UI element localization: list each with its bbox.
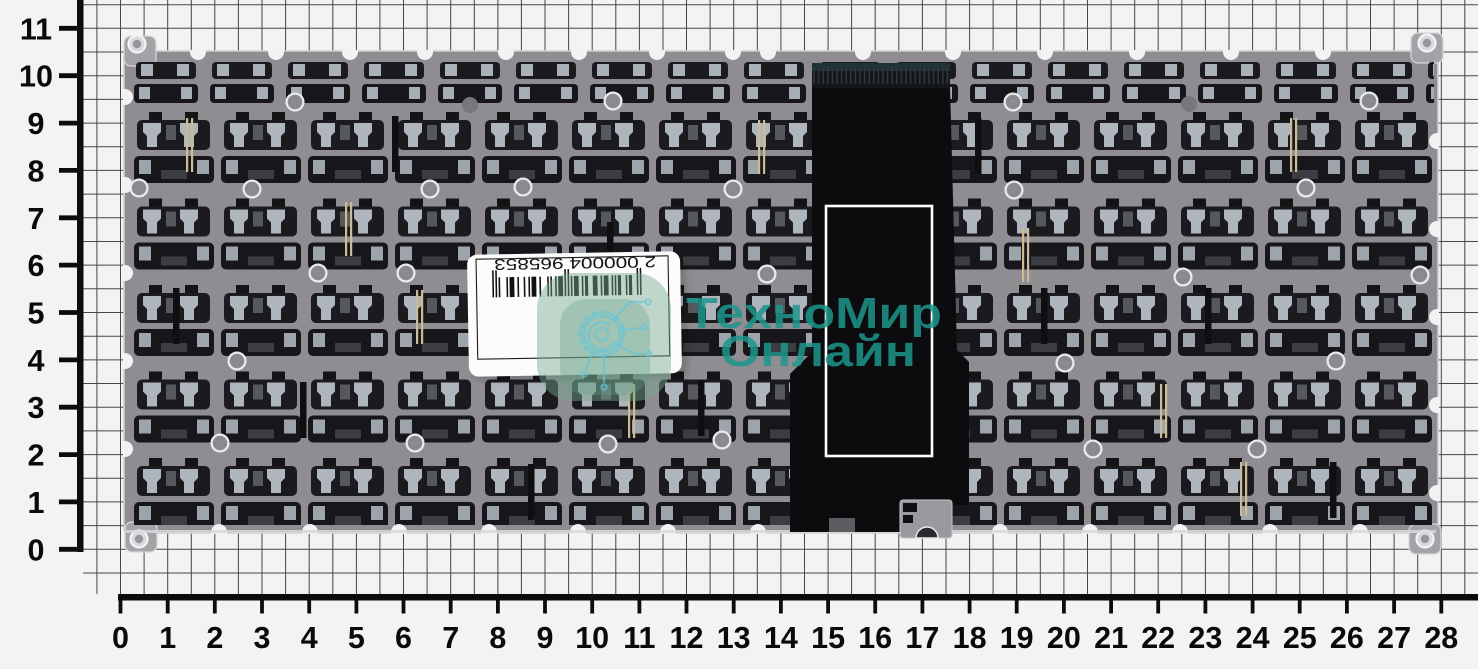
svg-text:8: 8 (489, 621, 506, 655)
svg-text:3: 3 (28, 391, 45, 425)
svg-text:15: 15 (811, 621, 845, 655)
svg-text:24: 24 (1236, 621, 1270, 655)
svg-text:22: 22 (1141, 621, 1175, 655)
svg-text:23: 23 (1188, 621, 1222, 655)
svg-text:7: 7 (28, 202, 45, 236)
svg-text:2 000004 965853: 2 000004 965853 (494, 253, 656, 273)
svg-text:13: 13 (717, 621, 751, 655)
svg-text:1: 1 (28, 486, 45, 520)
svg-text:18: 18 (953, 621, 987, 655)
svg-text:25: 25 (1283, 621, 1317, 655)
svg-text:4: 4 (28, 344, 45, 378)
svg-text:6: 6 (28, 249, 45, 283)
svg-text:10: 10 (575, 621, 609, 655)
svg-text:20: 20 (1047, 621, 1081, 655)
svg-text:19: 19 (1000, 621, 1034, 655)
svg-text:16: 16 (858, 621, 892, 655)
svg-text:4: 4 (301, 621, 318, 655)
svg-text:17: 17 (905, 621, 939, 655)
svg-text:0: 0 (112, 621, 129, 655)
svg-text:8: 8 (28, 154, 45, 188)
svg-text:Онлайн: Онлайн (720, 327, 916, 376)
svg-text:27: 27 (1377, 621, 1411, 655)
svg-text:14: 14 (764, 621, 798, 655)
svg-text:1: 1 (159, 621, 176, 655)
svg-text:2: 2 (28, 439, 45, 473)
svg-text:11: 11 (623, 621, 655, 655)
svg-text:2: 2 (206, 621, 223, 655)
svg-text:3: 3 (254, 621, 271, 655)
svg-text:0: 0 (28, 533, 45, 567)
svg-text:10: 10 (19, 60, 53, 94)
svg-text:28: 28 (1424, 621, 1458, 655)
svg-text:21: 21 (1094, 621, 1128, 655)
svg-text:9: 9 (28, 107, 45, 141)
svg-text:9: 9 (537, 621, 554, 655)
svg-text:6: 6 (395, 621, 412, 655)
svg-text:26: 26 (1330, 621, 1364, 655)
svg-text:5: 5 (28, 297, 45, 331)
svg-text:12: 12 (670, 621, 704, 655)
svg-text:7: 7 (442, 621, 459, 655)
svg-text:5: 5 (348, 621, 365, 655)
svg-text:11: 11 (20, 12, 52, 46)
